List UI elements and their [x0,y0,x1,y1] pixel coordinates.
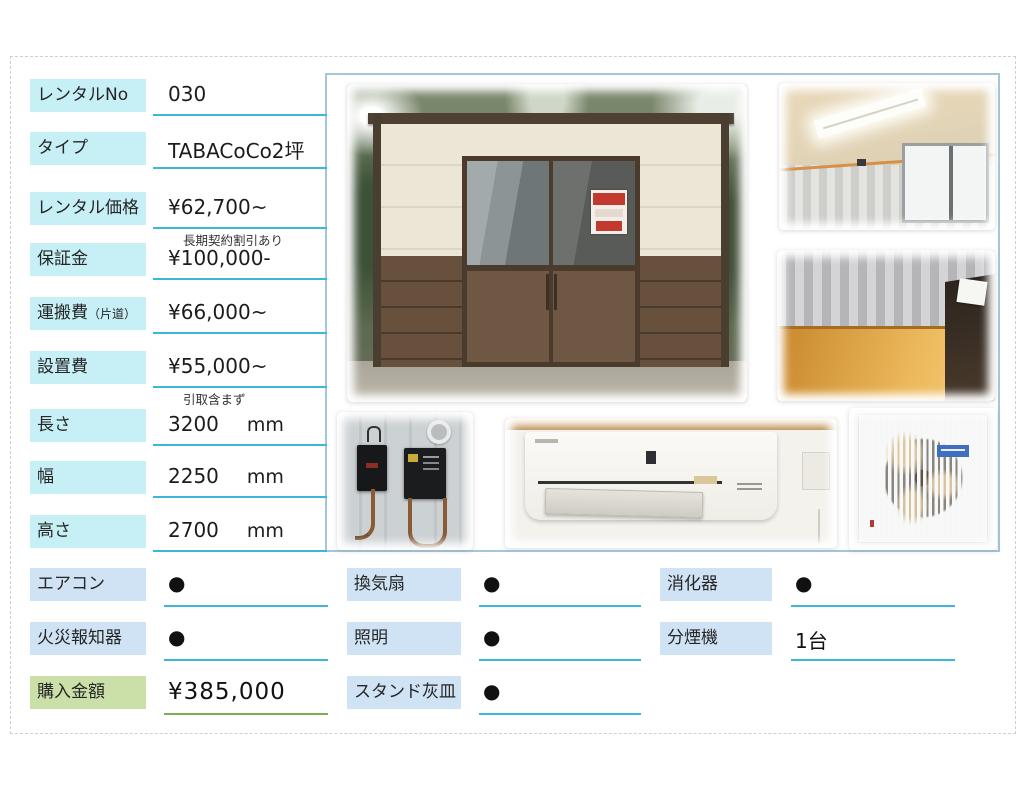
photo-exterior-front [347,84,747,402]
rental-spec-sheet: レンタルNo030タイプTABACoCo2坪レンタル価格¥62,700~長期契約… [0,0,1024,791]
door-divider [549,161,553,362]
power-cord [408,498,428,549]
fan-frame [858,414,988,543]
photo-ventilation-fan [849,408,997,550]
fan-label [937,445,969,457]
wall-paper-sheet [956,278,987,306]
equipment-underline [479,659,641,661]
spec-value: 030 [168,82,206,106]
power-cord [355,489,375,540]
spec-label: レンタルNo [30,79,146,112]
equipment-label: 火災報知器 [30,622,146,655]
equipment-label: スタンド灰皿 [347,676,461,709]
equipment-underline [164,605,328,607]
photo-collage [325,73,1000,552]
ac-unit [525,432,777,520]
photo-circuit-breakers [337,412,473,550]
equipment-label: 消化器 [660,568,772,601]
photo-interior-floor [777,250,995,401]
photo-air-conditioner [505,418,837,548]
door-handle [546,274,549,310]
equipment-value: ● [483,571,500,595]
spec-value: TABACoCo2坪 [168,135,305,164]
breaker-small [357,445,387,491]
spec-label: 運搬費（片道） [30,297,146,330]
spec-value: 2700mm [168,518,284,542]
spec-underline [153,227,327,229]
wood-strip [505,418,837,430]
ac-emblem [646,451,656,464]
spec-value: ¥66,000~ [168,300,267,324]
interior-window [902,143,988,222]
sliding-doors [462,156,640,367]
equipment-label: 照明 [347,622,461,655]
photo-interior-ceiling-light [779,83,995,230]
ac-open-flap [545,488,704,518]
spec-underline [153,167,327,169]
spec-underline [153,444,327,446]
ac-indicator-lights [737,483,762,485]
spec-value: 3200mm [168,412,284,436]
spec-underline [153,114,327,116]
power-cord [427,498,447,549]
fan-grille [859,415,987,542]
spec-underline [153,550,327,552]
door-glass-left [467,161,551,266]
equipment-value: ● [168,625,185,649]
equipment-value: ● [483,679,500,703]
spec-label: 保証金 [30,243,146,276]
ac-cord [818,509,820,543]
hanger-hook [367,426,381,442]
shed-post-right [720,113,729,367]
spec-underline [153,278,327,280]
wall-outlet-box [802,452,831,490]
ac-label [694,476,717,484]
equipment-underline [479,713,641,715]
spec-label: 設置費 [30,351,146,384]
equipment-value: 1台 [795,625,828,654]
spec-label: 高さ [30,515,146,548]
spec-label: レンタル価格 [30,192,146,225]
equipment-label: 購入金額 [30,676,146,709]
wall-washer [427,420,451,444]
door-glass-right [551,161,635,266]
equipment-label: 分煙機 [660,622,772,655]
spec-note: 引取含まず [183,389,246,408]
breaker-large [404,448,446,499]
wall-fixture [857,159,866,166]
spec-value: 2250mm [168,464,284,488]
shed-roof-beam [368,113,734,124]
equipment-value: ● [168,571,185,595]
equipment-underline [791,605,955,607]
equipment-value: ¥385,000 [168,679,286,705]
spec-underline [153,332,327,334]
prefab-shed [373,113,729,367]
equipment-underline [791,659,955,661]
door-handle [554,274,557,310]
spec-value: ¥55,000~ [168,354,267,378]
ac-brand-mark [535,439,558,443]
fan-switch-mark [870,520,874,527]
spec-label: タイプ [30,132,146,165]
equipment-underline [164,659,328,661]
spec-value: ¥100,000- [168,246,271,270]
equipment-underline [164,713,328,715]
equipment-label: 換気扇 [347,568,461,601]
spec-underline [153,496,327,498]
spec-label: 長さ [30,409,146,442]
spec-underline [153,386,327,388]
spec-label: 幅 [30,461,146,494]
equipment-label: エアコン [30,568,146,601]
spec-value: ¥62,700~ [168,195,267,219]
equipment-underline [479,605,641,607]
equipment-value: ● [795,571,812,595]
price-sign [591,190,626,234]
equipment-value: ● [483,625,500,649]
